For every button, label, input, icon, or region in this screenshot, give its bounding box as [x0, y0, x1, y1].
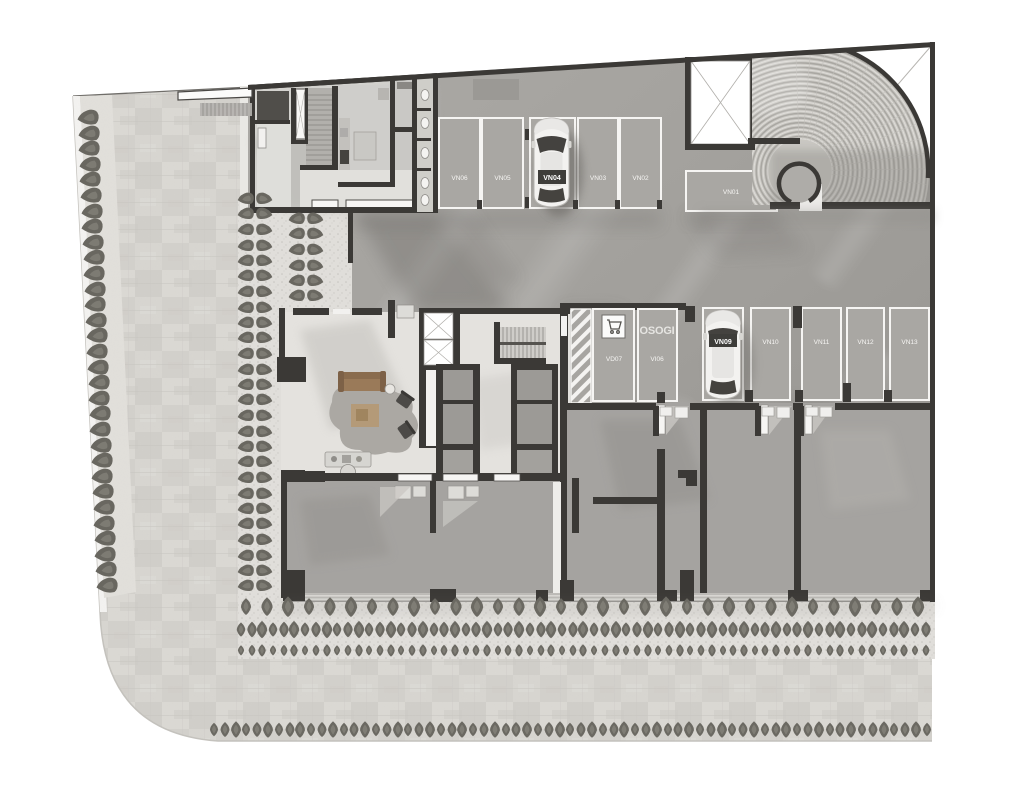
svg-text:VN11: VN11: [814, 339, 830, 346]
svg-text:VI06: VI06: [650, 356, 664, 363]
svg-text:VN02: VN02: [632, 175, 649, 182]
svg-text:VN03: VN03: [590, 175, 607, 182]
svg-text:VN01: VN01: [723, 189, 740, 196]
svg-text:VN09: VN09: [714, 339, 732, 346]
svg-text:VD07: VD07: [606, 356, 623, 363]
svg-text:VN05: VN05: [494, 175, 511, 182]
svg-text:VN06: VN06: [451, 175, 468, 182]
svg-text:VN04: VN04: [543, 175, 561, 182]
svg-text:VN12: VN12: [857, 339, 874, 346]
svg-text:VN13: VN13: [901, 339, 918, 346]
svg-text:VN10: VN10: [762, 339, 779, 346]
svg-text:OSOGI: OSOGI: [639, 325, 674, 337]
